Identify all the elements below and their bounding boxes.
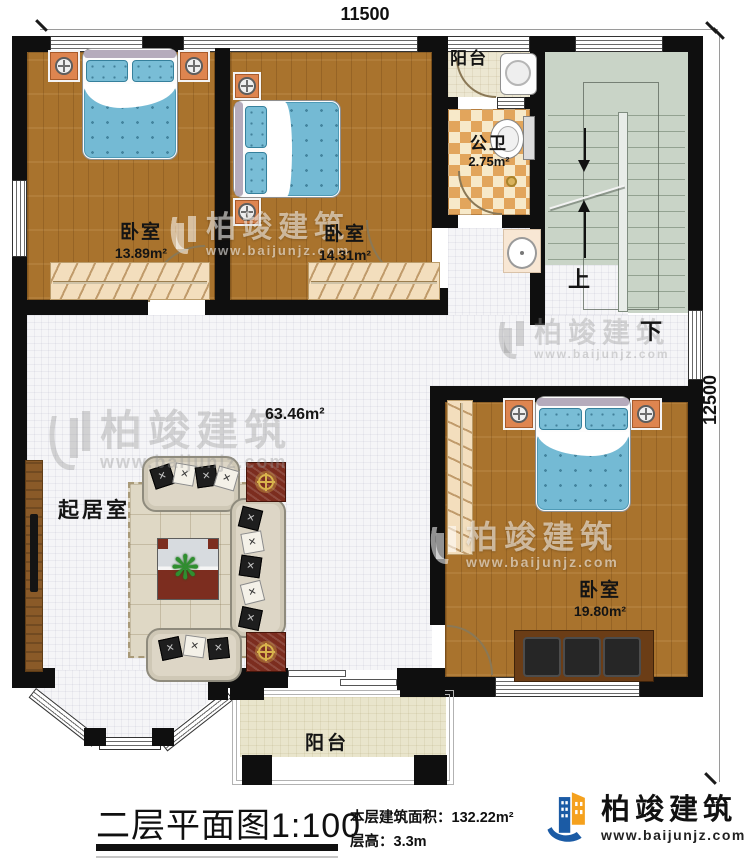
- cabinet-seat: [523, 637, 561, 677]
- living-room-label: 起居室: [58, 494, 130, 524]
- nightstand: [48, 50, 80, 82]
- pillow: [245, 106, 267, 148]
- lamp-icon: [238, 203, 256, 221]
- wardrobe: [50, 262, 210, 300]
- wall: [152, 728, 174, 746]
- lamp-icon: [637, 405, 655, 423]
- cushion-icon: ✕: [172, 462, 196, 486]
- wall: [400, 680, 445, 697]
- wall: [530, 36, 575, 52]
- balcony-top-label: 阳台: [450, 44, 488, 69]
- wall: [215, 48, 230, 302]
- floor-drain-icon: [506, 176, 517, 187]
- nightstand: [233, 72, 261, 100]
- cushion-icon: ✕: [239, 555, 263, 579]
- wall: [84, 728, 106, 746]
- stair-arrow-down-icon: [578, 160, 590, 172]
- dimension-top: 11500: [320, 4, 410, 25]
- cushion-icon: ✕: [238, 606, 263, 631]
- cushion-icon: ✕: [158, 636, 183, 661]
- bed-headboard: [537, 398, 629, 406]
- living-room-area-label: 63.46m²: [265, 406, 325, 424]
- pillow: [585, 408, 628, 430]
- tv: [30, 514, 38, 592]
- bed-headboard: [84, 50, 176, 58]
- window: [12, 180, 27, 257]
- pillow: [539, 408, 582, 430]
- brand-name: 柏竣建筑: [601, 795, 746, 827]
- cabinet-seat: [603, 637, 641, 677]
- stair-arrow-line-top: [584, 128, 586, 162]
- wall: [432, 215, 458, 228]
- bedroom3-label: 卧室 19.80m²: [540, 580, 660, 620]
- wardrobe: [308, 262, 440, 300]
- floor-mat: [246, 632, 286, 672]
- sliding-door: [288, 670, 346, 677]
- dimension-right: 12500: [700, 350, 724, 450]
- wall: [414, 755, 447, 785]
- floor-mat: [246, 462, 286, 502]
- wall: [12, 300, 148, 315]
- stair-arrow-line-bottom: [584, 212, 586, 258]
- page-title: 二层平面图1:100: [96, 798, 361, 847]
- cushion-icon: ✕: [238, 506, 263, 531]
- wall: [208, 682, 228, 700]
- window: [575, 36, 663, 52]
- stairs-down-label: 下: [640, 314, 662, 346]
- window: [497, 97, 525, 109]
- balcony-bottom-label: 阳台: [305, 728, 349, 755]
- wall: [205, 300, 448, 315]
- dimension-line-top: [40, 29, 718, 30]
- sliding-door: [340, 679, 397, 686]
- floor-plan: ✕ ✕ ✕ ✕ ✕ ✕ ✕ ✕ ✕ ✕ ✕ ✕ ❋: [0, 0, 750, 859]
- cushion-icon: ✕: [240, 530, 264, 554]
- cabinet-seat: [563, 637, 601, 677]
- rosette-icon: [258, 644, 274, 660]
- dimension-tick: [704, 772, 717, 785]
- lamp-icon: [238, 77, 256, 95]
- title-underline-thin: [96, 856, 338, 858]
- bed-headboard: [235, 102, 243, 196]
- nightstand: [233, 198, 261, 226]
- rosette-icon: [258, 474, 274, 490]
- stair-arrow-up-icon: [578, 200, 590, 212]
- pillow: [132, 60, 174, 82]
- brand-website: www.baijunjz.com: [601, 827, 746, 843]
- cushion-icon: ✕: [214, 466, 240, 492]
- wall: [230, 684, 264, 700]
- bedroom2-label: 卧室 14.31m²: [292, 224, 398, 264]
- bedroom1-label: 卧室 13.89m²: [85, 222, 197, 262]
- bed-sheet: [268, 102, 292, 196]
- sofa: ✕ ✕ ✕ ✕ ✕: [230, 498, 286, 638]
- brand-logo: 柏竣建筑 www.baijunjz.com: [541, 790, 746, 848]
- brand-logo-icon: [541, 790, 593, 848]
- wall: [242, 755, 272, 785]
- cushion-icon: ✕: [240, 580, 265, 605]
- stairs-up-label: 上: [568, 262, 590, 294]
- sofa: ✕ ✕ ✕: [146, 628, 242, 682]
- sink-drain-icon: [520, 251, 524, 255]
- sofa: ✕ ✕ ✕ ✕: [142, 456, 240, 512]
- lamp-icon: [55, 57, 73, 75]
- title-underline: [96, 844, 338, 851]
- wardrobe: [447, 400, 473, 555]
- wall: [12, 36, 27, 180]
- bedroom3-cabinet: [514, 630, 654, 682]
- pillow: [86, 60, 128, 82]
- wall: [432, 97, 458, 109]
- nightstand: [630, 398, 662, 430]
- floor-height-text: 层高：3.3m: [350, 830, 427, 851]
- washing-machine-drum-icon: [505, 60, 531, 86]
- plant-icon: ❋: [171, 551, 200, 585]
- cushion-icon: ✕: [183, 635, 207, 659]
- wall: [688, 36, 703, 310]
- wall: [430, 402, 445, 625]
- bathroom-label: 公卫 2.75m²: [445, 134, 533, 170]
- nightstand: [178, 50, 210, 82]
- nightstand: [503, 398, 535, 430]
- cushion-icon: ✕: [207, 637, 230, 660]
- floor-area-text: 本层建筑面积：132.22m²: [350, 806, 514, 827]
- lamp-icon: [510, 405, 528, 423]
- pillow: [245, 152, 267, 194]
- lamp-icon: [185, 57, 203, 75]
- cushion-icon: ✕: [149, 463, 175, 489]
- stair-center-rail: [618, 112, 628, 312]
- wall: [432, 36, 448, 220]
